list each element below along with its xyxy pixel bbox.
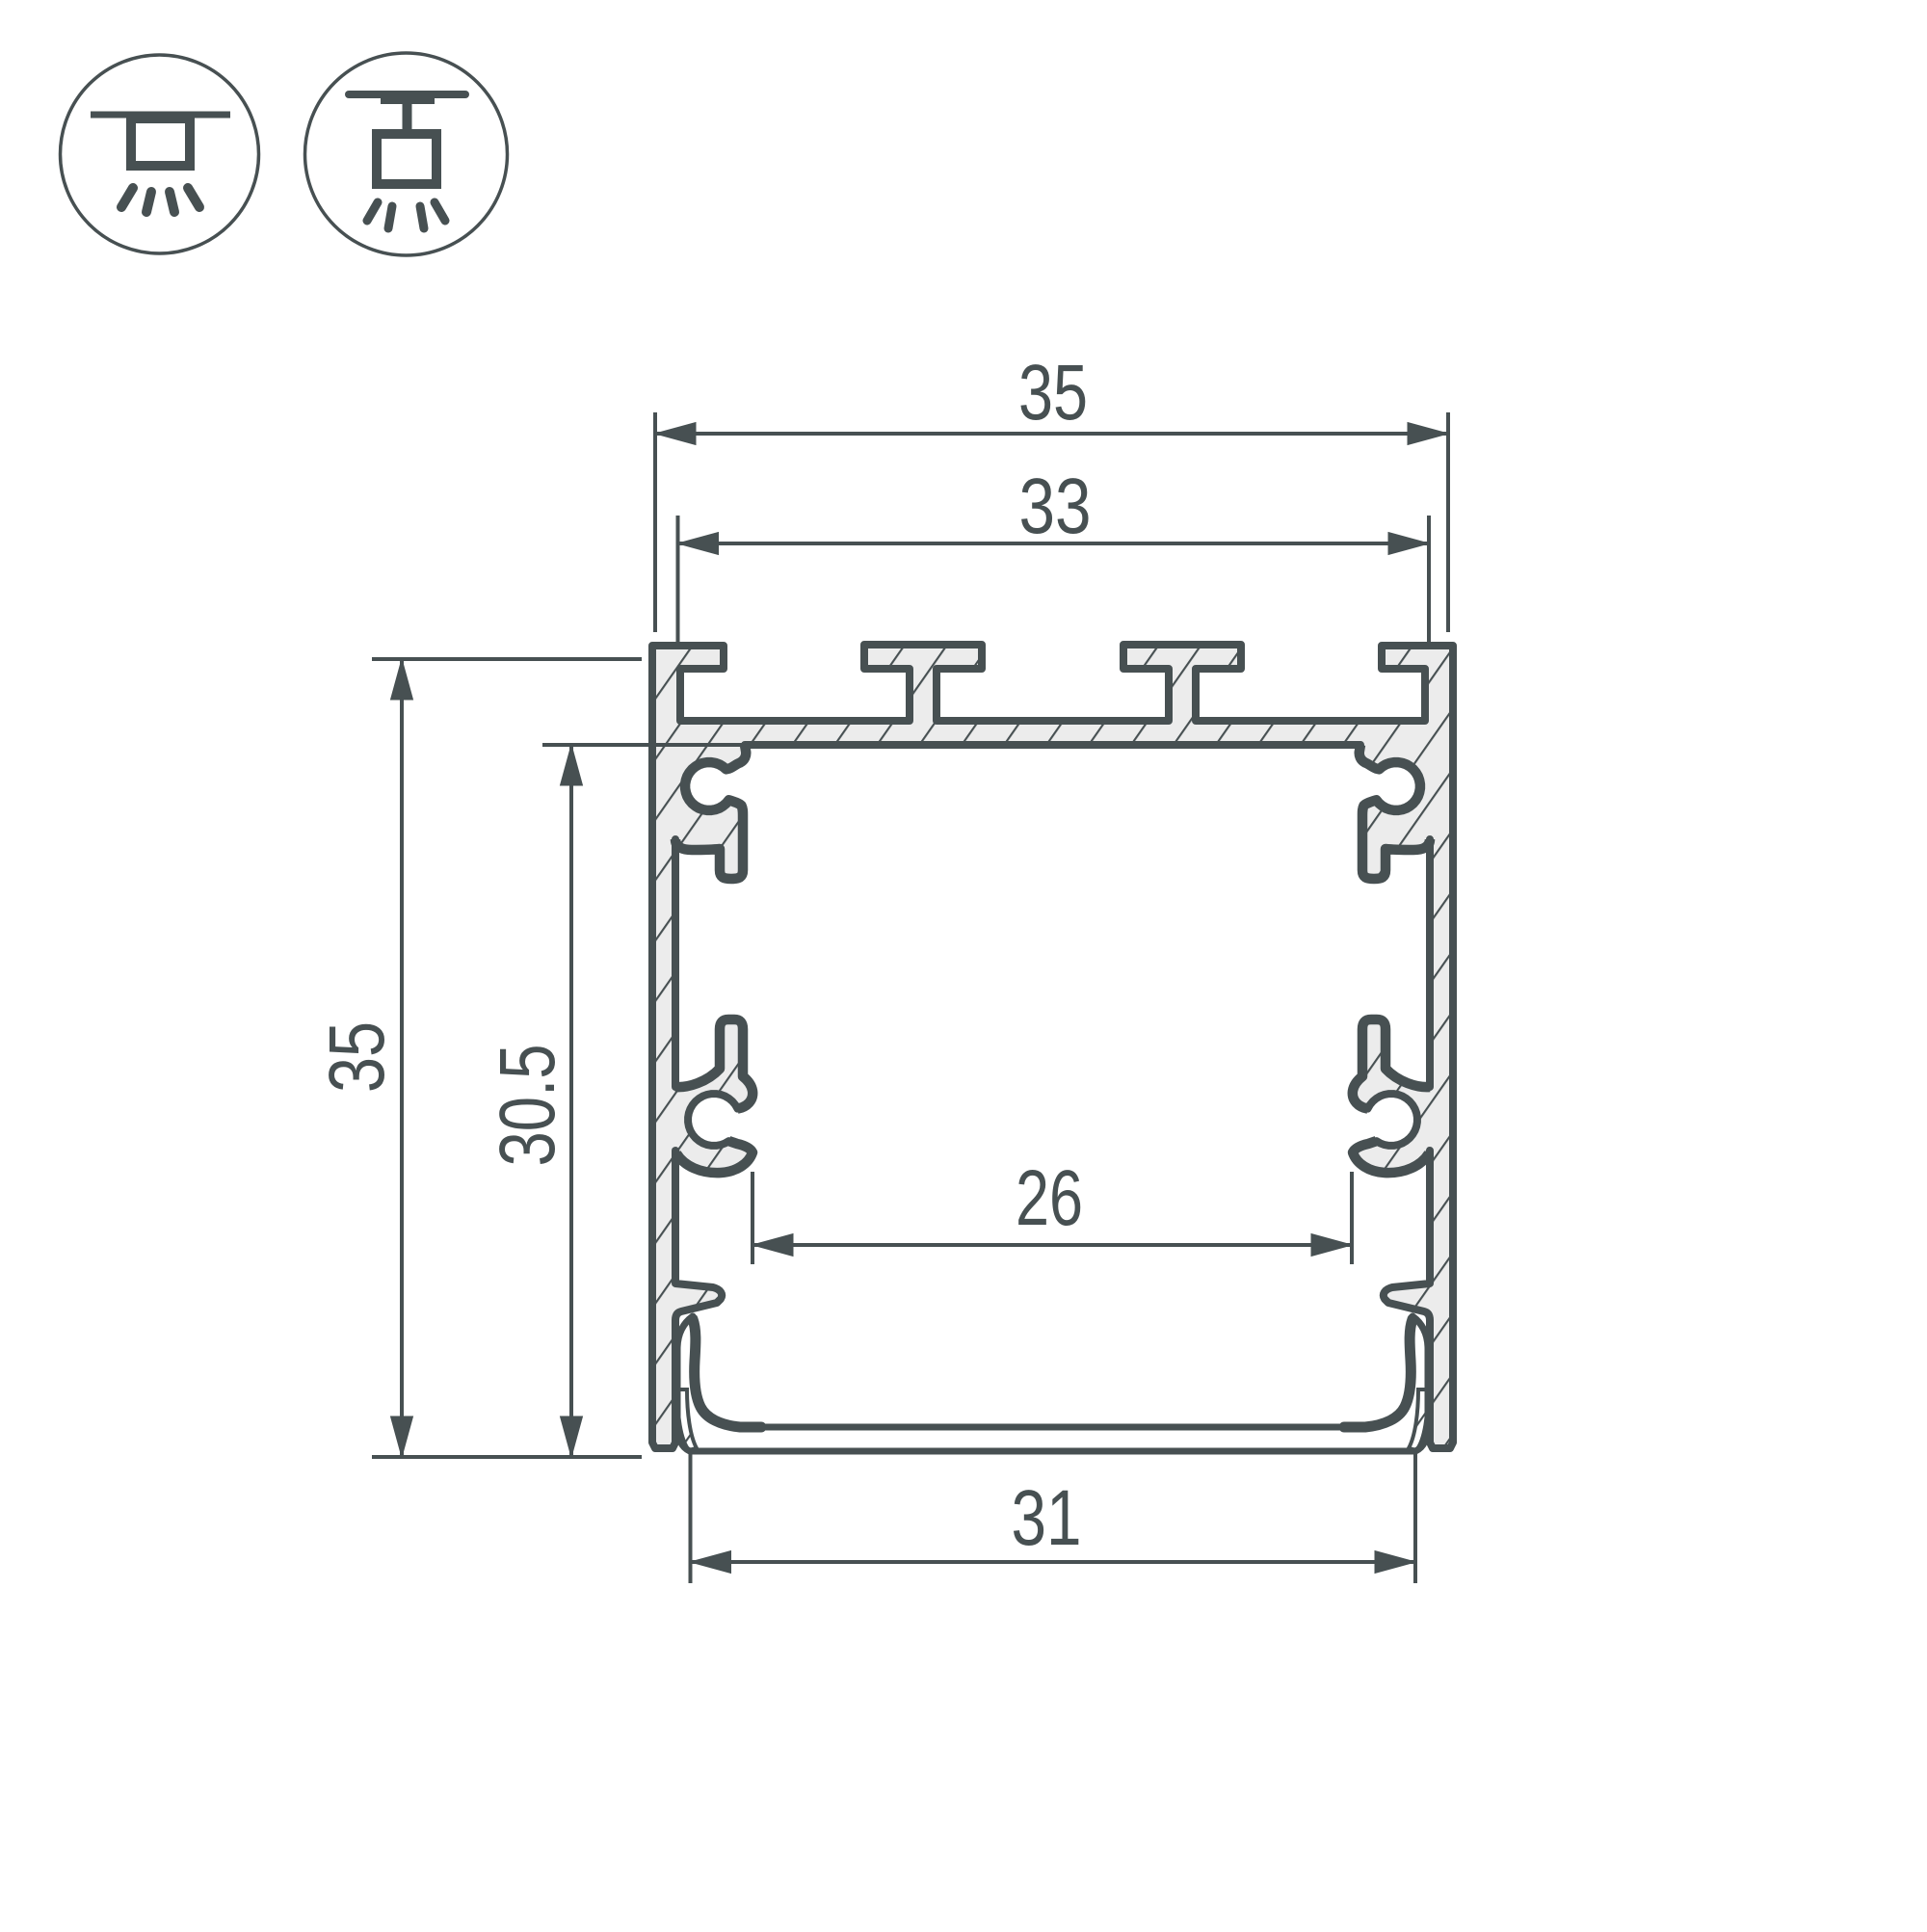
- svg-text:33: 33: [1019, 463, 1092, 550]
- svg-text:35: 35: [1018, 349, 1088, 437]
- svg-text:35: 35: [313, 1021, 401, 1093]
- svg-text:30.5: 30.5: [484, 1045, 571, 1167]
- svg-text:26: 26: [1016, 1154, 1083, 1242]
- svg-text:31: 31: [1012, 1474, 1082, 1562]
